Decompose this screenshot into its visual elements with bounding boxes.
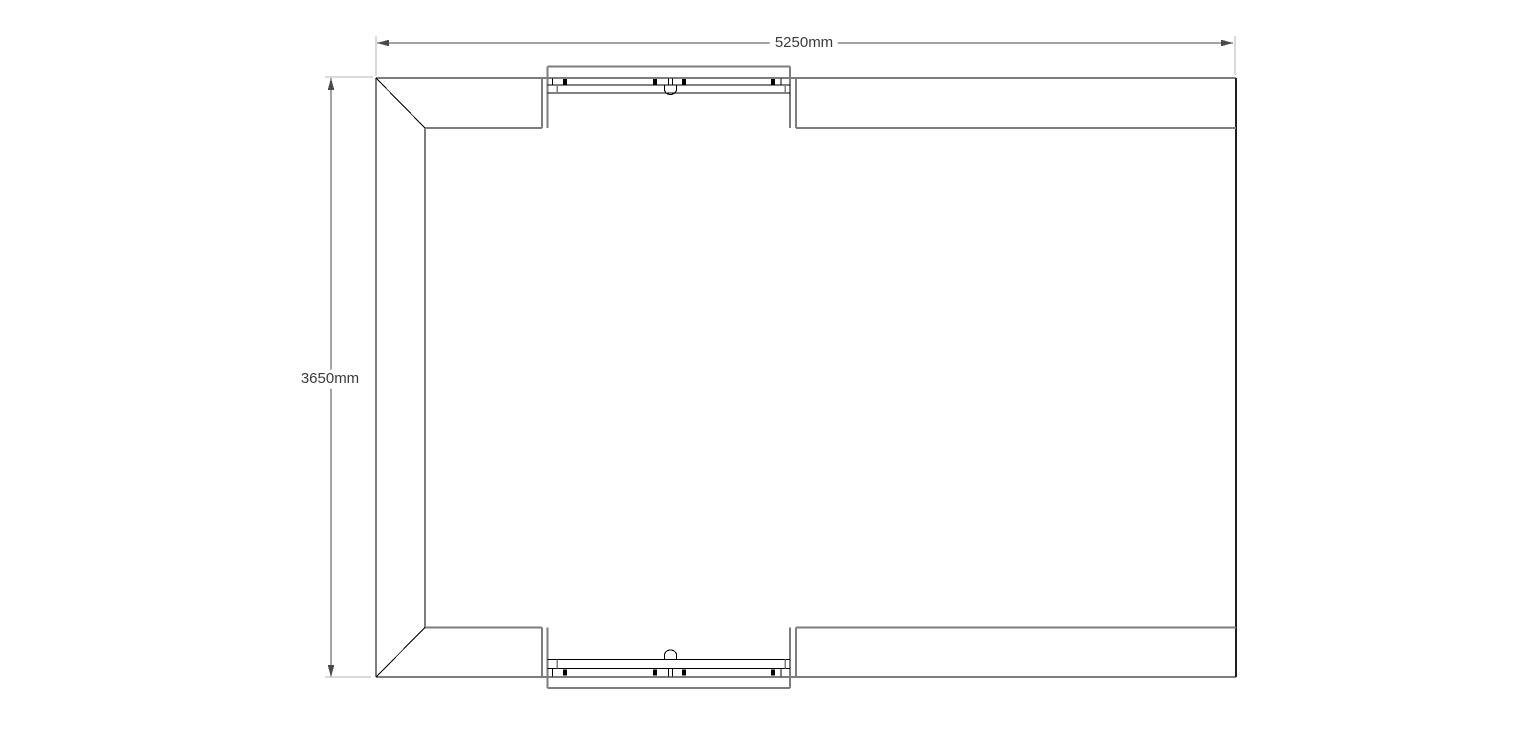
top-window-lock-block <box>653 79 657 85</box>
top-window-lock-block <box>563 79 567 85</box>
height-dim-arrow-bottom <box>328 665 335 677</box>
width-dimension-label: 5250mm <box>770 34 838 53</box>
bottom-window-latch <box>665 650 677 660</box>
bottom-left-chamfer <box>376 628 425 678</box>
top-window-lock-block <box>682 79 686 85</box>
bottom-window-lock-block <box>653 670 657 676</box>
height-dimension-label: 3650mm <box>296 370 364 389</box>
bottom-window-lock-block <box>563 670 567 676</box>
bottom-window-lock-block <box>682 670 686 676</box>
bottom-window-lock-block <box>771 670 775 676</box>
width-dim-arrow-left <box>377 40 389 47</box>
plan-svg <box>0 0 1534 756</box>
height-dim-arrow-top <box>328 78 335 90</box>
top-left-chamfer <box>376 78 425 128</box>
floor-plan-canvas: 5250mm 3650mm <box>0 0 1534 756</box>
top-window-lock-block <box>771 79 775 85</box>
width-dim-arrow-right <box>1221 40 1233 47</box>
